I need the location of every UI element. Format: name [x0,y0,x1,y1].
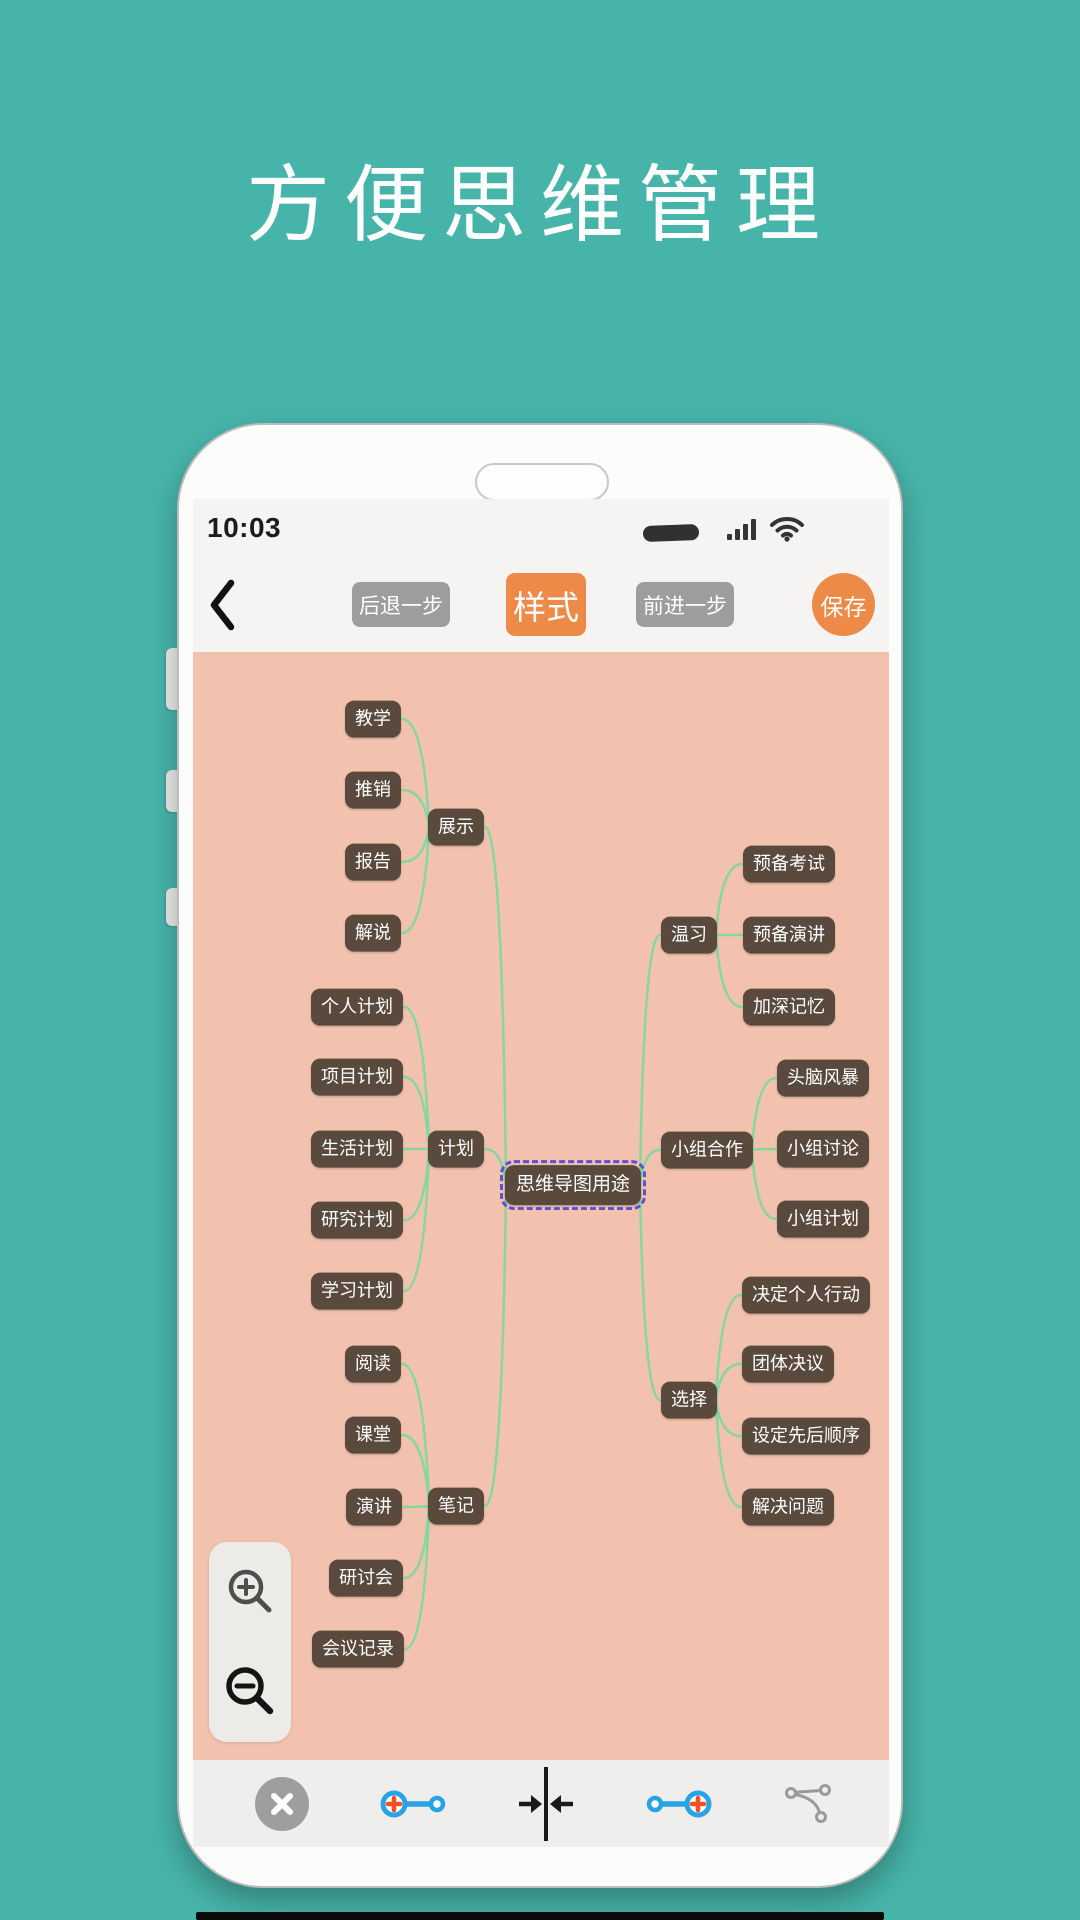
add-node-right-button[interactable] [645,1783,713,1825]
structure-button[interactable] [783,1783,833,1825]
mindmap-nodes: 思维导图用途展示计划笔记温习小组合作选择教学推销报告解说个人计划项目计划生活计划… [193,652,889,1760]
zoom-in-icon [221,1563,279,1621]
redo-button[interactable]: 前进一步 [636,582,734,627]
add-node-left-icon [379,1783,447,1825]
mindmap-node-jihua[interactable]: 计划 [428,1131,484,1168]
bottom-toolbar [193,1760,889,1847]
mindmap-node-zhanshi[interactable]: 展示 [428,809,484,846]
mindmap-node-xiaozuhezuo[interactable]: 小组合作 [661,1132,753,1169]
zoom-panel [209,1542,291,1742]
top-toolbar: 后退一步 样式 前进一步 保存 [193,557,889,652]
mindmap-node-xiaozutaolun[interactable]: 小组讨论 [777,1131,869,1168]
mindmap-node-center[interactable]: 思维导图用途 [505,1165,641,1205]
mindmap-node-tuantijueyi[interactable]: 团体决议 [742,1346,834,1383]
collapse-icon [517,1763,575,1845]
mindmap-node-biji[interactable]: 笔记 [428,1488,484,1525]
mindmap-node-yanjiujihua[interactable]: 研究计划 [311,1202,403,1239]
structure-icon [783,1783,833,1825]
zoom-out-icon [221,1663,279,1721]
mindmap-node-yuedu[interactable]: 阅读 [345,1346,401,1383]
mindmap-node-yantaohui[interactable]: 研讨会 [329,1560,403,1597]
style-button[interactable]: 样式 [506,573,586,636]
close-icon [255,1777,309,1831]
zoom-out-button[interactable] [221,1663,279,1721]
mindmap-node-yubeiyanjiang[interactable]: 预备演讲 [743,917,835,954]
mindmap-canvas[interactable]: 思维导图用途展示计划笔记温习小组合作选择教学推销报告解说个人计划项目计划生活计划… [193,652,889,1760]
mindmap-node-gerenjihua[interactable]: 个人计划 [311,989,403,1026]
home-indicator [196,1912,884,1920]
status-bar: 10:03 [193,499,889,557]
status-time: 10:03 [207,512,281,544]
zoom-in-button[interactable] [221,1563,279,1621]
mindmap-node-jiaoxue[interactable]: 教学 [345,701,401,738]
close-button[interactable] [255,1777,309,1831]
mindmap-node-tuixiao[interactable]: 推销 [345,772,401,809]
status-icons [725,514,805,542]
mindmap-node-xuexijihua[interactable]: 学习计划 [311,1273,403,1310]
save-button[interactable]: 保存 [812,573,875,636]
mindmap-node-baogao[interactable]: 报告 [345,844,401,881]
wifi-icon [769,514,805,542]
mindmap-node-yubeikaoshi[interactable]: 预备考试 [743,846,835,883]
undo-button[interactable]: 后退一步 [352,582,450,627]
mindmap-node-wenxi[interactable]: 温习 [661,917,717,954]
mindmap-node-jiashenjiyi[interactable]: 加深记忆 [743,989,835,1026]
add-node-left-button[interactable] [379,1783,447,1825]
page-background: 方便思维管理 10:03 [0,0,1080,1920]
mindmap-node-juedinggeren[interactable]: 决定个人行动 [742,1277,870,1314]
mindmap-node-xiangmujihua[interactable]: 项目计划 [311,1059,403,1096]
mindmap-node-jiejuewenti[interactable]: 解决问题 [742,1489,834,1526]
collapse-button[interactable] [517,1763,575,1845]
mindmap-node-ketang[interactable]: 课堂 [345,1417,401,1454]
page-title: 方便思维管理 [0,138,1080,259]
mindmap-node-shedingshunxu[interactable]: 设定先后顺序 [742,1418,870,1455]
mindmap-node-jieshuo[interactable]: 解说 [345,915,401,952]
signal-icon [725,516,759,542]
mindmap-node-tounaofengbao[interactable]: 头脑风暴 [777,1060,869,1097]
mindmap-node-huiyijilu[interactable]: 会议记录 [312,1631,404,1668]
status-dark-blob [643,524,700,542]
mindmap-node-yanjiang[interactable]: 演讲 [346,1489,402,1526]
back-button[interactable] [205,576,239,634]
mindmap-node-shenghuojihua[interactable]: 生活计划 [311,1131,403,1168]
back-chevron-icon [205,576,239,634]
mindmap-node-xiaozujihua[interactable]: 小组计划 [777,1201,869,1238]
phone-screen: 10:03 [193,499,889,1847]
add-node-right-icon [645,1783,713,1825]
mindmap-node-xuanze[interactable]: 选择 [661,1382,717,1419]
camera-pill [475,463,609,501]
phone-frame: 10:03 [177,423,903,1888]
